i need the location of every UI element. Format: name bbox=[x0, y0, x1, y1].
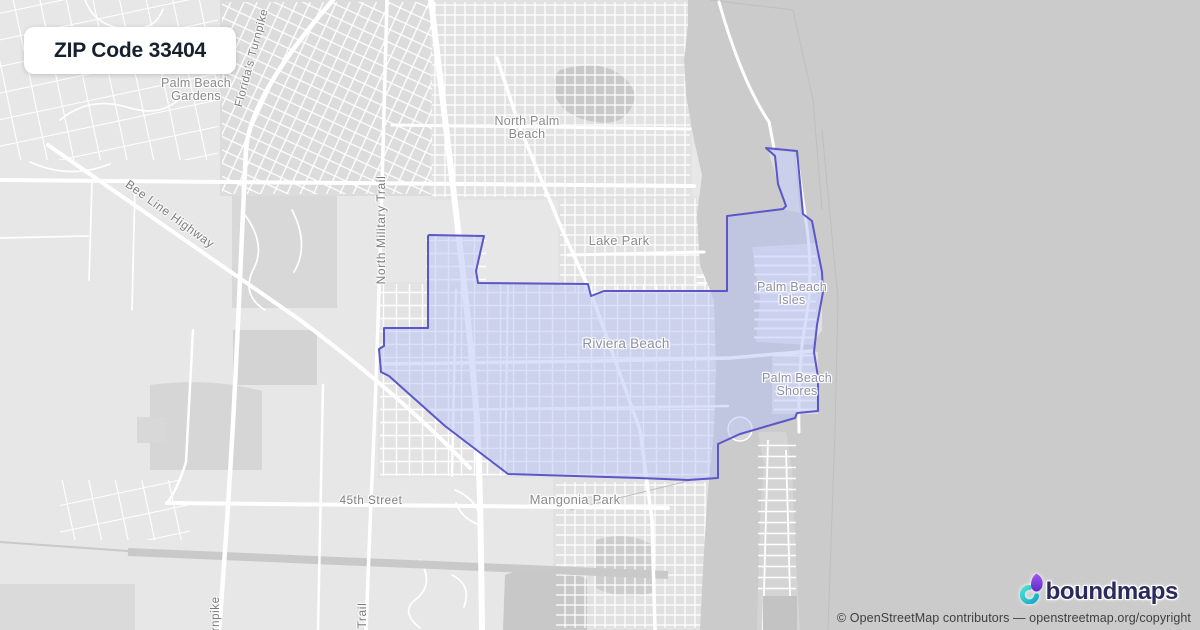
zip-title: ZIP Code 33404 bbox=[54, 39, 206, 63]
boundmaps-logo[interactable]: boundmaps bbox=[1019, 573, 1178, 604]
zip-title-card: ZIP Code 33404 bbox=[24, 27, 236, 74]
map-canvas bbox=[0, 0, 1200, 630]
logo-text: boundmaps bbox=[1046, 580, 1178, 604]
map-view[interactable]: Palm Beach Gardens North Palm Beach Lake… bbox=[0, 0, 1200, 630]
map-attribution[interactable]: © OpenStreetMap contributors — openstree… bbox=[837, 611, 1191, 625]
map-pin-drop-icon bbox=[1019, 573, 1045, 604]
